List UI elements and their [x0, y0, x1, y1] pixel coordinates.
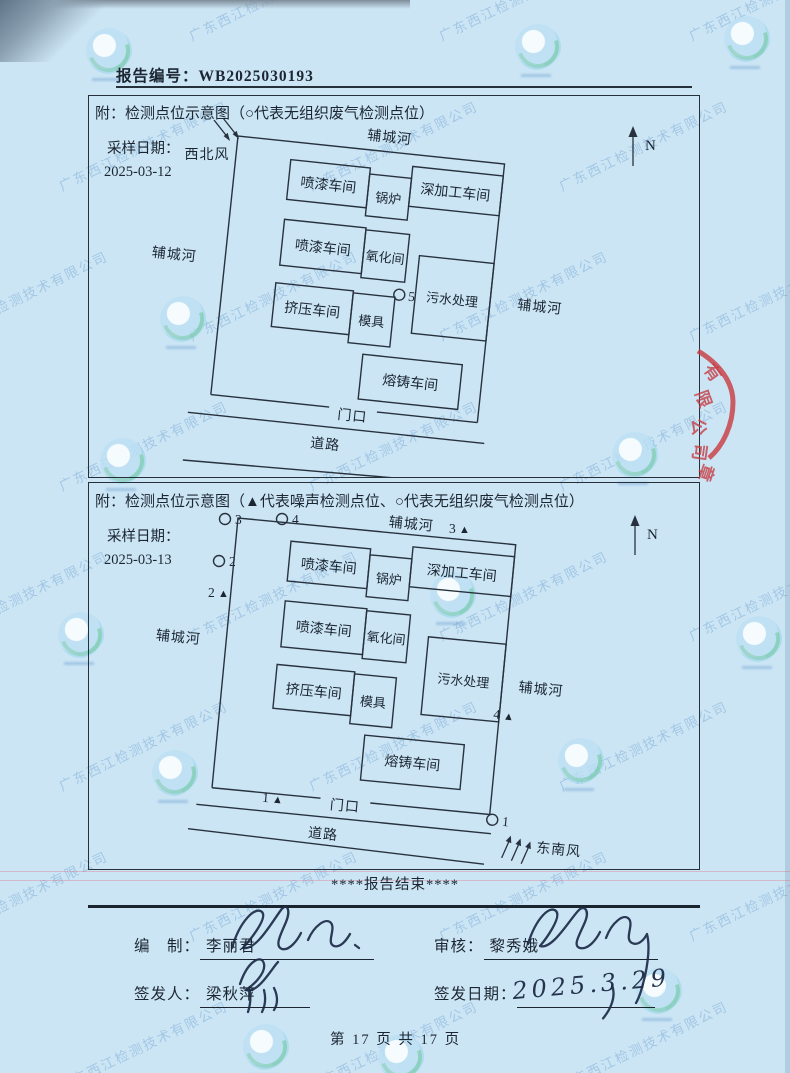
watermark-logo-icon: [243, 1024, 289, 1070]
room-label: 氧化间: [365, 248, 405, 267]
noise-triangle-icon: ▲: [503, 710, 515, 723]
reviewed-by-name: 黎秀娥: [490, 938, 540, 955]
report-end-note: ****报告结束****: [0, 873, 790, 894]
seal-arc: [698, 351, 733, 458]
gate-label: 门口: [329, 797, 360, 816]
wind-direction-label: 西北风: [185, 147, 230, 163]
room-label: 挤压车间: [283, 299, 340, 322]
noise-triangle-icon: ▲: [459, 524, 470, 536]
diagram2-box: 附：检测点位示意图（▲代表噪声检测点位、○代表无组织废气检测点位） 采样日期： …: [88, 482, 700, 870]
report-number-underline: [116, 86, 692, 88]
room-label: 熔铸车间: [381, 371, 438, 394]
diagram2-title: 附：检测点位示意图（▲代表噪声检测点位、○代表无组织废气检测点位）: [95, 492, 584, 510]
page-number: 第 17 页 共 17 页: [330, 1028, 461, 1049]
room-label: 氧化间: [366, 629, 406, 648]
gas-point-2-marker: 2: [214, 554, 236, 569]
river-label-top: 辅城河: [388, 515, 434, 535]
seal-char: 有: [700, 360, 726, 385]
noise-point-2-marker: 2 ▲: [208, 585, 229, 600]
factory-plan-2: 喷漆车间 锅炉 深加工车间 喷漆车间 氧化间 污水处理 挤压车间 模具 熔铸车间…: [137, 493, 611, 869]
north-label: N: [645, 138, 656, 154]
noise-point-4-marker: 4 ▲: [493, 706, 515, 723]
issuer-label: 签发人：: [134, 982, 200, 1004]
southeast-wind-arrows-icon: [501, 835, 532, 865]
wind-direction-label: 东南风: [535, 840, 581, 860]
gas-point-4-label: 4: [292, 512, 299, 527]
gas-point-1-label: 1: [501, 814, 509, 830]
scan-edge-right: [785, 0, 790, 1073]
prepared-by-name: 李丽君: [206, 938, 256, 955]
report-number: 报告编号：WB2025030193: [116, 64, 314, 86]
diagram2-canvas: 附：检测点位示意图（▲代表噪声检测点位、○代表无组织废气检测点位） 采样日期： …: [89, 483, 699, 869]
watermark-logo-icon: [515, 24, 561, 70]
room-label: 熔铸车间: [384, 752, 441, 774]
watermark-company-text: 广东西江检测技术有限公司: [685, 545, 790, 645]
river-label-right: 辅城河: [517, 297, 563, 318]
watermark-company-text: 广东西江检测技术有限公司: [685, 245, 790, 345]
sample-date-label: 采样日期：: [107, 140, 180, 157]
reviewed-by-field: 审核： 黎秀娥: [434, 934, 658, 960]
issue-date-label: 签发日期：: [434, 982, 517, 1004]
diagram1-canvas: 附：检测点位示意图（○代表无组织废气检测点位） 采样日期： 2025-03-12…: [89, 96, 699, 477]
noise-point-2-label: 2: [208, 585, 215, 600]
watermark-company-text: 广东西江检测技术有限公司: [685, 845, 790, 945]
diagram1-title: 附：检测点位示意图（○代表无组织废气检测点位）: [95, 104, 434, 122]
watermark-company-text: 广东西江检测技术有限公司: [685, 0, 790, 45]
gas-point-4-marker: 4: [277, 512, 300, 527]
reviewed-by-label: 审核：: [434, 934, 484, 956]
prepared-by-field: 编 制： 李丽君: [134, 934, 374, 960]
room-label: 锅炉: [375, 571, 402, 588]
factory-boundary: [212, 518, 516, 814]
room-label: 喷漆车间: [294, 237, 351, 260]
river-label-left: 辅城河: [155, 628, 201, 648]
sample-date-value: 2025-03-13: [104, 552, 172, 568]
report-page: 广东西江检测技术有限公司广东西江检测技术有限公司广东西江检测技术有限公司广东西江…: [0, 0, 790, 1073]
room-label: 锅炉: [375, 190, 402, 208]
gate-label: 门口: [337, 407, 369, 426]
scan-edge-corner: [0, 0, 120, 62]
report-number-value: WB2025030193: [199, 68, 314, 85]
noise-triangle-icon: ▲: [218, 588, 229, 600]
room-label: 挤压车间: [285, 680, 342, 702]
north-arrow-icon: N: [629, 126, 657, 166]
reviewed-by-line: 黎秀娥: [484, 934, 658, 960]
north-arrow-icon: N: [631, 515, 659, 555]
scan-line-artifact: [0, 871, 790, 872]
report-number-label: 报告编号：: [116, 68, 199, 85]
room-label: 喷漆车间: [300, 174, 357, 197]
river-label-right: 辅城河: [518, 680, 564, 700]
room-label: 喷漆车间: [300, 555, 357, 577]
watermark-logo-icon: [736, 616, 782, 662]
noise-triangle-icon: ▲: [272, 794, 284, 807]
watermark-logo-icon: [724, 16, 770, 62]
gas-point-1-marker: 1: [486, 812, 510, 829]
prepared-by-label: 编 制：: [134, 934, 200, 956]
issuer-line: 梁秋萍: [200, 982, 310, 1008]
noise-point-3-marker: 3 ▲: [449, 521, 470, 536]
room-label: 污水处理: [437, 671, 490, 691]
room-label: 模具: [358, 313, 385, 331]
road-label: 道路: [307, 825, 338, 844]
road-label: 道路: [309, 435, 341, 454]
road-line-lower: [183, 454, 478, 477]
issue-date-field: 签发日期：: [434, 982, 655, 1008]
gas-point-5-marker: 5: [393, 287, 416, 304]
issuer-name: 梁秋萍: [206, 986, 256, 1003]
room-label: 污水处理: [425, 290, 478, 310]
gas-point-3-marker: 3: [220, 512, 243, 527]
room-label: 深加工车间: [420, 180, 491, 204]
issuer-field: 签发人： 梁秋萍: [134, 982, 310, 1008]
issue-date-line: [517, 986, 655, 1008]
sample-date-label: 采样日期：: [107, 528, 180, 545]
river-label-left: 辅城河: [151, 245, 197, 266]
footer-rule: [88, 905, 700, 908]
noise-point-4-label: 4: [493, 706, 501, 722]
north-label: N: [647, 527, 658, 543]
room-label: 模具: [359, 694, 386, 711]
noise-point-1-label: 1: [262, 790, 270, 806]
room-label: 喷漆车间: [295, 618, 352, 640]
diagram1-box: 附：检测点位示意图（○代表无组织废气检测点位） 采样日期： 2025-03-12…: [88, 95, 700, 478]
room-label: 深加工车间: [426, 561, 497, 585]
prepared-by-line: 李丽君: [200, 934, 374, 960]
watermark-company-text: 广东西江检测技术有限公司: [435, 0, 611, 45]
noise-point-1-marker: 1 ▲: [262, 790, 284, 807]
river-label-top: 辅城河: [366, 128, 412, 149]
noise-point-3-label: 3: [449, 521, 456, 536]
sample-date-value: 2025-03-12: [104, 164, 172, 180]
